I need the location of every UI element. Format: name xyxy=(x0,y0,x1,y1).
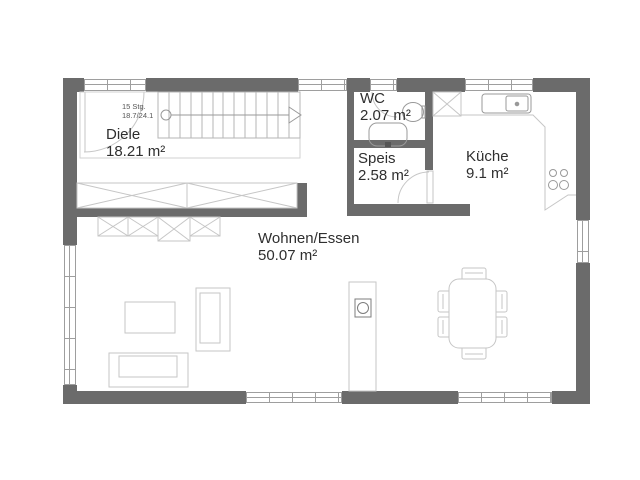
stair-rise-run-label: 18.7/24.1 xyxy=(122,111,153,120)
coffee-table-icon xyxy=(125,302,175,333)
wardrobe-icon xyxy=(77,183,297,208)
wc-sink-icon xyxy=(369,123,407,147)
room-label-diele: Diele 18.21 m² xyxy=(106,126,165,160)
room-label-kueche: Küche 9.1 m² xyxy=(466,148,509,182)
stair-walk-line-icon xyxy=(161,107,301,123)
room-area: 2.58 m² xyxy=(358,167,409,184)
room-name: WC xyxy=(360,90,411,107)
stove-icon xyxy=(549,170,569,190)
dining-table-icon xyxy=(438,268,507,359)
room-area: 50.07 m² xyxy=(258,247,359,264)
kitchen-sink-icon xyxy=(482,94,531,113)
room-name: Wohnen/Essen xyxy=(258,230,359,247)
stair-steps-label: 15 Stg. xyxy=(122,102,153,111)
room-label-speis: Speis 2.58 m² xyxy=(358,150,409,184)
room-name: Diele xyxy=(106,126,165,143)
room-name: Küche xyxy=(466,148,509,165)
room-label-wc: WC 2.07 m² xyxy=(360,90,411,124)
floor-plan: 15 Stg. 18.7/24.1 Diele 18.21 m² WC 2.07… xyxy=(0,0,640,480)
room-name: Speis xyxy=(358,150,409,167)
stair-annotation: 15 Stg. 18.7/24.1 xyxy=(122,102,153,120)
room-area: 9.1 m² xyxy=(466,165,509,182)
shaft-icon xyxy=(433,92,461,116)
room-label-wohnen-essen: Wohnen/Essen 50.07 m² xyxy=(258,230,359,264)
room-area: 2.07 m² xyxy=(360,107,411,124)
room-area: 18.21 m² xyxy=(106,143,165,160)
sideboard-icon xyxy=(98,217,220,241)
sofa-icon xyxy=(109,288,230,387)
fireplace-icon xyxy=(349,282,376,391)
